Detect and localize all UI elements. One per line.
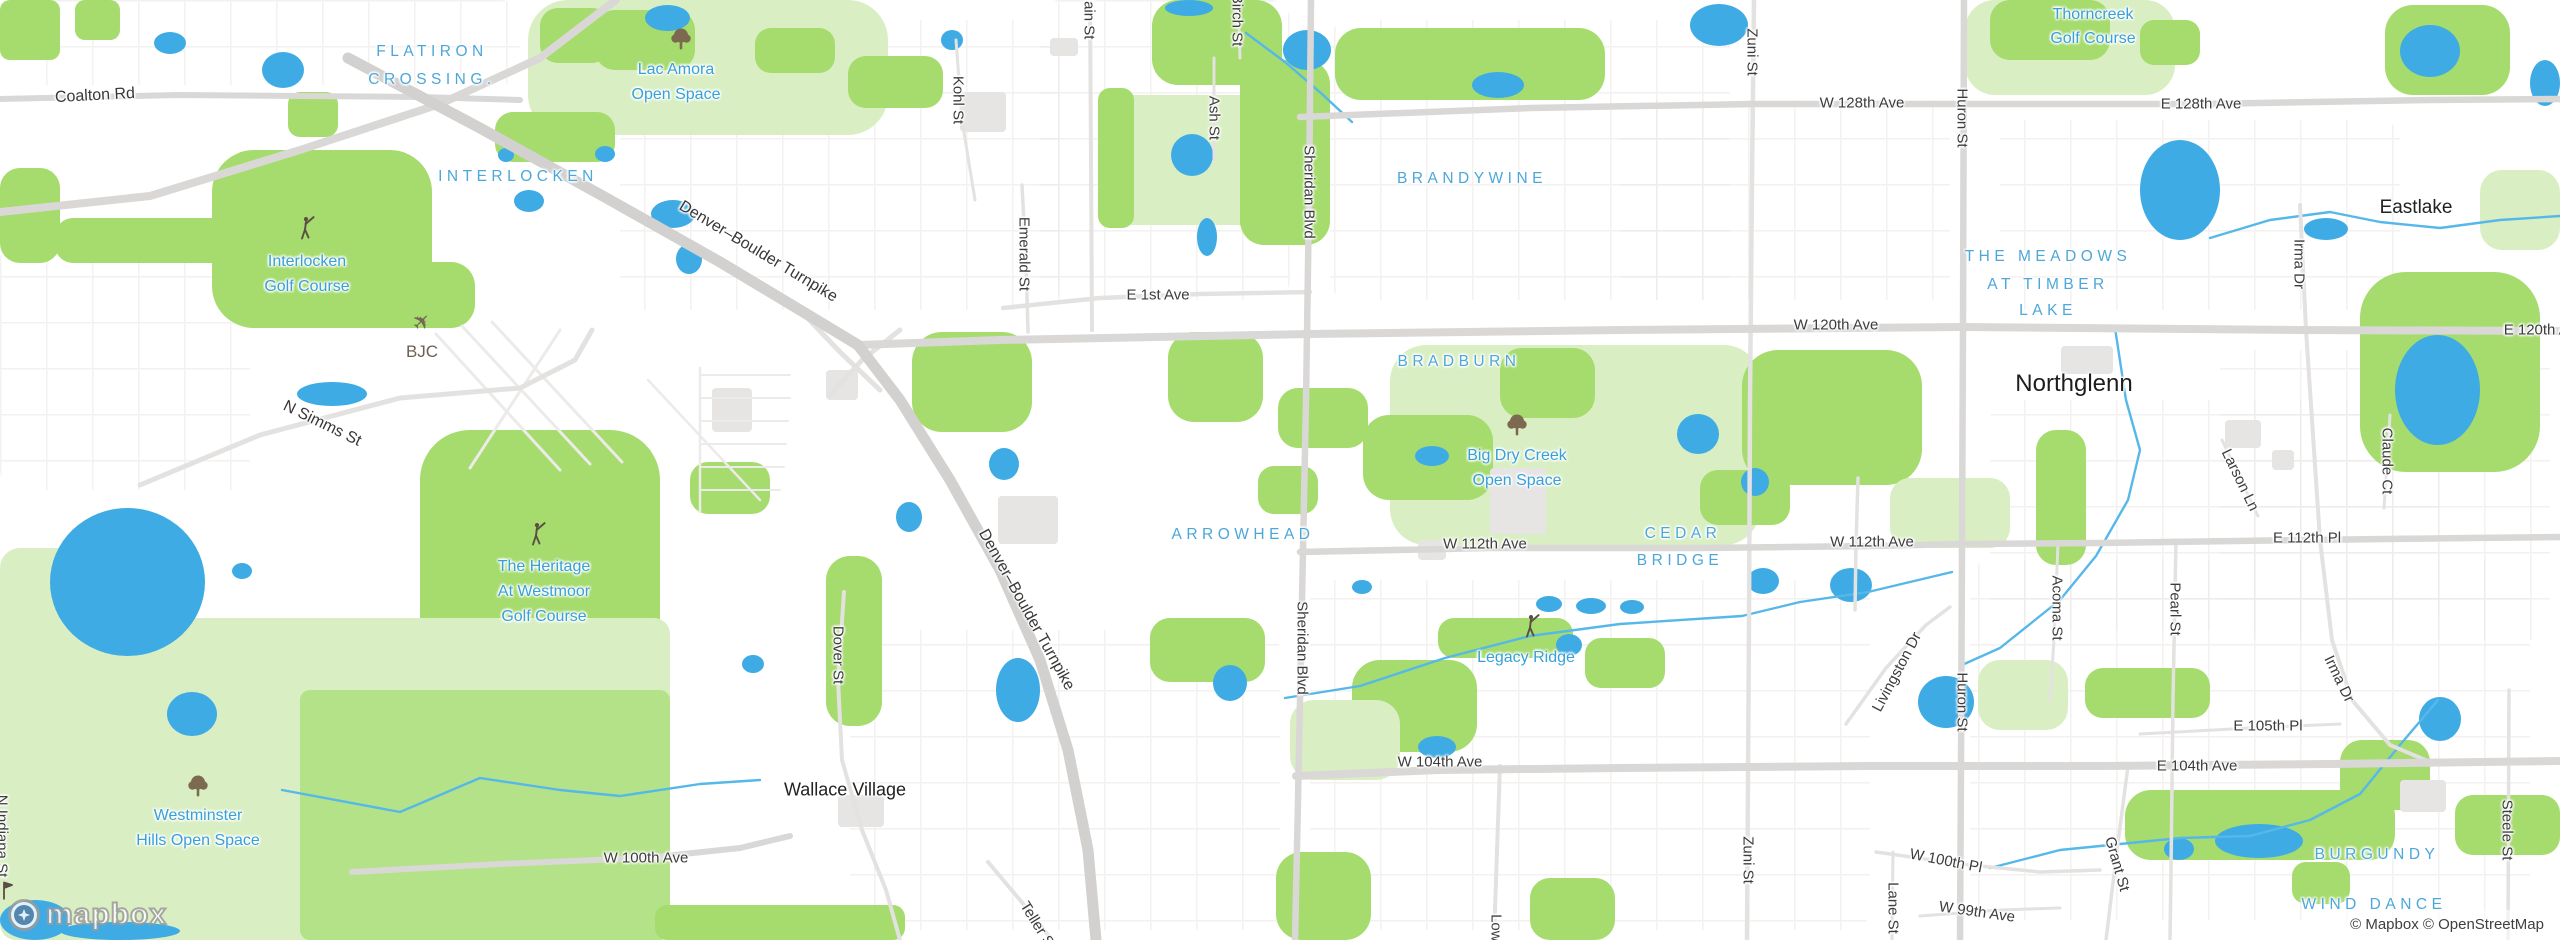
park-area [1990,0,2110,60]
lake [645,5,690,31]
lake [1352,580,1372,594]
lake [1747,568,1779,594]
lake [1620,600,1644,614]
mapbox-logo-text: mapbox [46,898,167,932]
lake [232,563,252,579]
lake [1741,468,1769,496]
lake [742,655,764,673]
park-area [655,905,905,940]
lake [595,146,615,162]
lake [2304,218,2348,240]
lake [941,30,963,50]
lake [2164,838,2194,860]
road [1238,0,1240,58]
road [1090,0,1092,330]
park-area [848,56,943,108]
lake [896,502,922,532]
lake [1556,634,1582,656]
lake [514,190,544,212]
lake [167,692,217,736]
park-area [0,0,60,60]
road [2508,690,2509,940]
lake [989,448,1019,480]
road [0,95,520,100]
park-area [1585,638,1665,688]
lake [1576,598,1606,614]
park-area [1978,660,2068,730]
lake [262,52,304,88]
park-area [826,556,882,726]
park-area [912,332,1032,432]
park-area [1278,388,1368,448]
lake [2419,697,2461,741]
lake [1171,134,1213,176]
lake [1415,446,1449,466]
map-base-layers [0,0,2560,940]
park-area [1335,28,1605,100]
park-area [2140,20,2200,65]
park-area [0,168,60,263]
lake [50,508,205,656]
park-area [1098,88,1134,228]
mapbox-star-icon [17,908,31,922]
lake [1536,596,1562,612]
park-area [1168,332,1263,422]
mapbox-logo-icon [8,899,40,931]
lake [1472,72,1524,98]
lake [2395,335,2480,445]
park-area [355,262,475,328]
park-area [1150,618,1265,682]
park-area [1530,878,1615,940]
lake [2400,25,2460,77]
park-area [1276,852,1371,940]
park-area [1438,618,1573,658]
road [1892,852,1893,940]
lake [996,658,1040,722]
park-area [55,218,235,263]
park-area [75,0,120,40]
road [1960,0,1964,940]
lake [1165,0,1213,16]
park-area [2292,862,2350,904]
park-area [1258,466,1318,514]
lake [1213,665,1247,701]
park-area [1742,350,1922,485]
lake [1283,30,1331,70]
lake [297,382,367,406]
mapbox-logo[interactable]: mapbox [8,898,167,932]
map-canvas[interactable]: Coalton RdDenver–Boulder TurnpikeDenver–… [0,0,2560,940]
lake [1677,414,1719,454]
park-area [1890,478,2010,548]
lake [1690,4,1748,46]
park-area [755,28,835,73]
lake [1197,218,1217,256]
lake [2140,140,2220,240]
lake [1418,736,1456,758]
park-area [2480,170,2560,250]
park-area [300,690,670,940]
map-attribution[interactable]: © Mapbox © OpenStreetMap [2336,910,2560,940]
lake [1918,676,1974,728]
park-area [1290,700,1400,780]
park-area [690,462,770,514]
lake [2215,824,2303,858]
park-area [2085,668,2210,718]
park-area [1500,348,1595,418]
lake [154,32,186,54]
